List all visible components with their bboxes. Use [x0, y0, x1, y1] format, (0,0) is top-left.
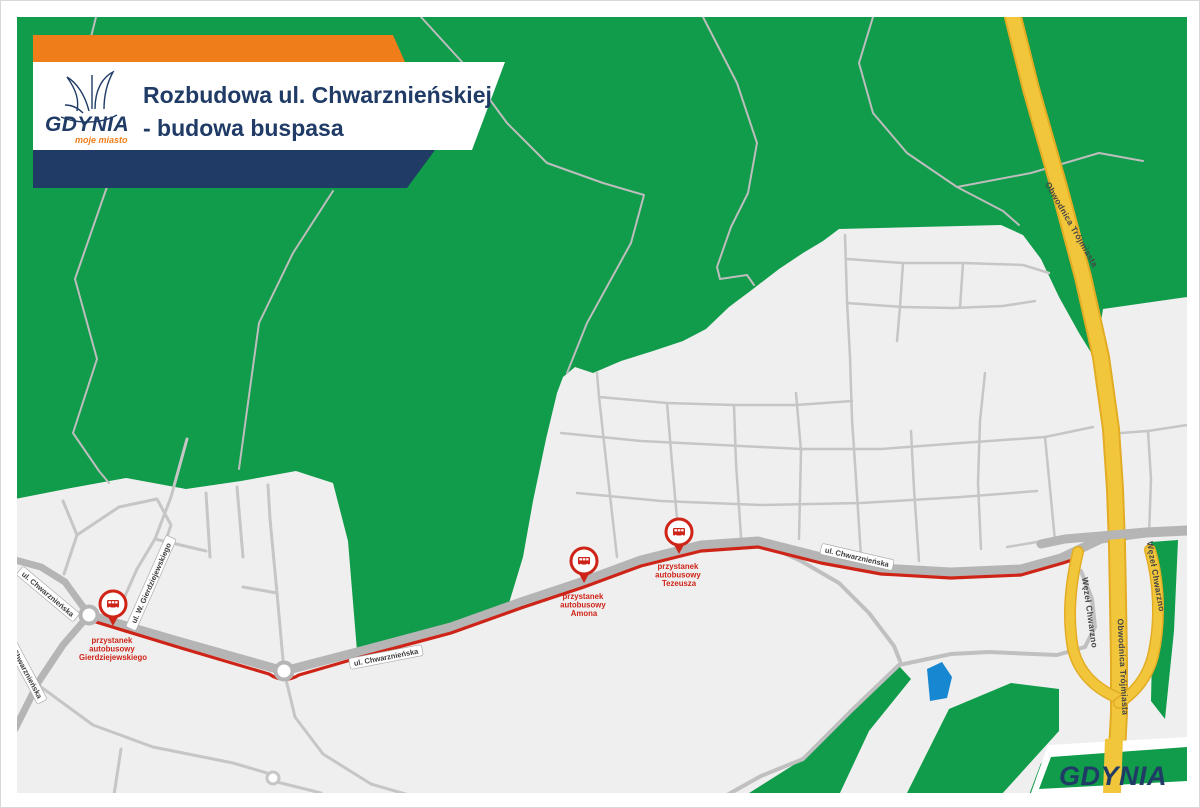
bus-icon [107, 600, 119, 609]
map-poster: ul. Chwarznieńska ul. Chwarznieńska ul. … [0, 0, 1200, 808]
map-svg: ul. Chwarznieńska ul. Chwarznieńska ul. … [1, 1, 1200, 808]
poster-title-line2: - budowa buspasa [143, 115, 344, 141]
gdynia-logo-tagline: moje miasto [75, 135, 128, 145]
header-orange-bar [33, 35, 405, 62]
bus-icon [673, 528, 685, 537]
roundabout-central [276, 663, 293, 680]
poster-title-line1: Rozbudowa ul. Chwarznieńskiej [143, 82, 492, 108]
roundabout-south [267, 772, 279, 784]
header-navy-bar [33, 150, 435, 188]
bus-stop-label-tezeusza: przystanek autobusowy Tezeusza [655, 562, 703, 588]
gdynia-logo-text: GDYNIA [45, 113, 129, 136]
roundabout-west [81, 607, 98, 624]
bus-icon [578, 557, 590, 566]
footer-gdynia-text: GDYNIA [1059, 761, 1167, 791]
footer-logo: GDYNIA [1031, 737, 1187, 793]
